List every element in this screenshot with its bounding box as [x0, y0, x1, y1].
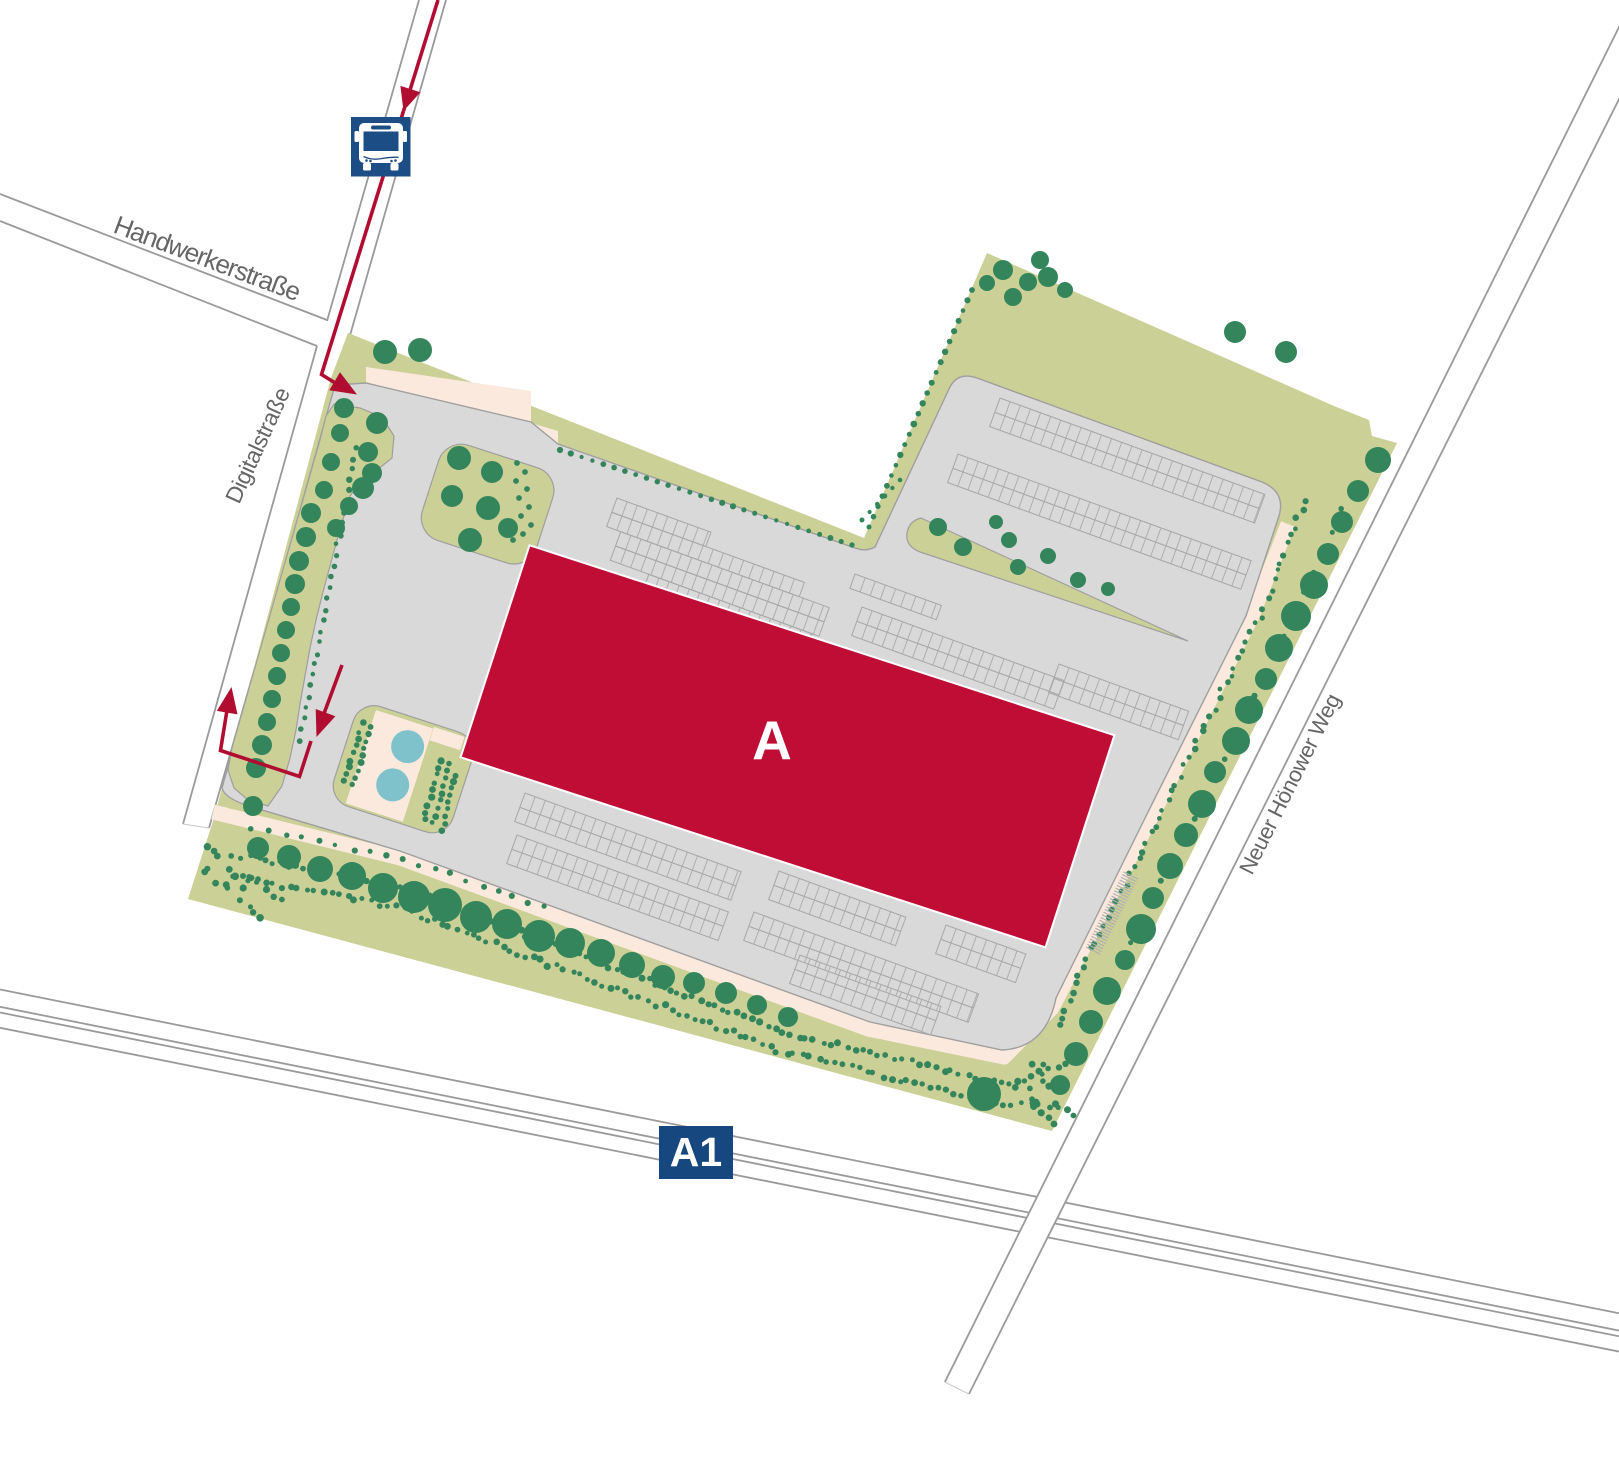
svg-text:A: A	[752, 709, 792, 771]
svg-text:A1: A1	[670, 1129, 722, 1175]
